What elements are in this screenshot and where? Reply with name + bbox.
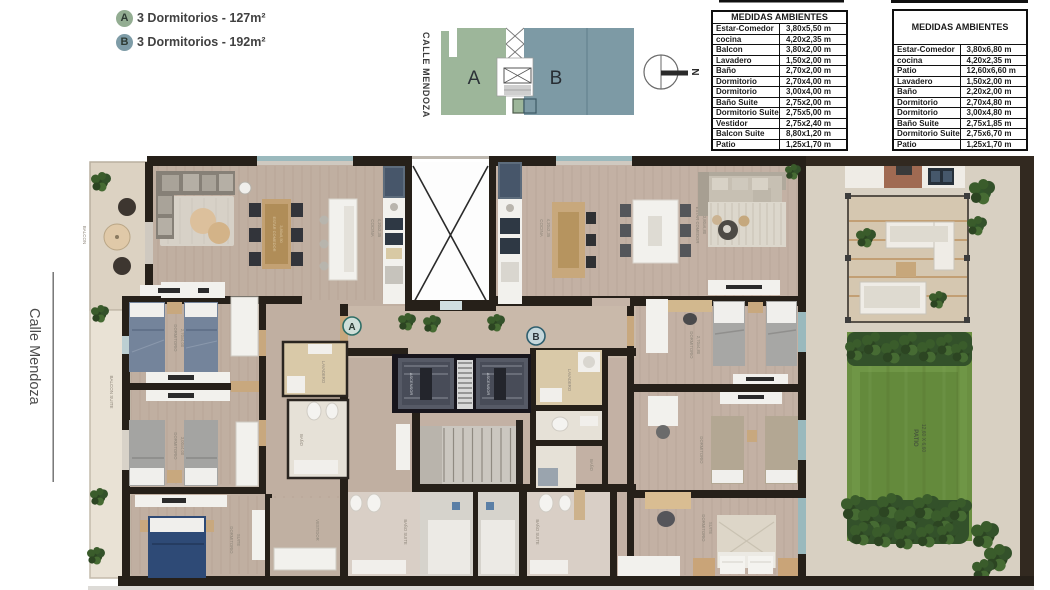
svg-text:DORMITORIO: DORMITORIO [689,331,694,359]
svg-text:B: B [532,332,539,343]
svg-text:SUITE: SUITE [708,522,713,535]
svg-text:DORMITORIO: DORMITORIO [701,514,706,542]
svg-text:PATIO: PATIO [912,429,918,447]
svg-text:3,80x5,50: 3,80x5,50 [279,225,284,243]
svg-text:A: A [468,68,481,89]
svg-text:DORMITORIO: DORMITORIO [173,324,178,352]
svg-text:3,00x4,00: 3,00x4,00 [180,437,185,456]
svg-text:ASCENSOR: ASCENSOR [409,373,414,396]
svg-text:BAÑO: BAÑO [299,434,304,447]
svg-text:DORMITORIO: DORMITORIO [173,432,178,460]
svg-text:BAÑO: BAÑO [589,459,594,472]
svg-text:DORMITORIO: DORMITORIO [699,436,704,464]
svg-text:COCINA: COCINA [370,219,375,237]
svg-text:4,20x2,35: 4,20x2,35 [377,219,382,238]
svg-text:VESTIDOR: VESTIDOR [315,519,320,540]
svg-text:ASCENSOR: ASCENSOR [486,373,491,396]
svg-text:BAÑO SUITE: BAÑO SUITE [403,519,408,545]
svg-text:DORMITORIO: DORMITORIO [229,526,234,554]
svg-text:3,80x6,80: 3,80x6,80 [702,216,707,235]
svg-text:BALCON SUITE: BALCON SUITE [109,375,114,408]
svg-text:B: B [550,68,563,89]
svg-text:BAÑO SUITE: BAÑO SUITE [535,519,540,545]
svg-text:2,70x4,00: 2,70x4,00 [180,329,185,348]
svg-text:2,70x4,80: 2,70x4,80 [696,336,701,355]
svg-text:LAVADERO: LAVADERO [567,369,572,392]
svg-text:COCINA: COCINA [539,219,544,237]
svg-text:LAVADERO: LAVADERO [321,361,326,384]
svg-text:A: A [348,322,355,333]
svg-text:ESTAR COMEDOR: ESTAR COMEDOR [272,216,277,251]
svg-text:BALCON: BALCON [82,226,87,245]
svg-text:CALLE MENDOZA: CALLE MENDOZA [421,32,431,118]
svg-text:12,60 X 6,60: 12,60 X 6,60 [920,424,926,453]
svg-text:4,20x2,35: 4,20x2,35 [546,219,551,238]
svg-text:N: N [689,68,700,75]
svg-text:SUITE: SUITE [236,534,241,547]
